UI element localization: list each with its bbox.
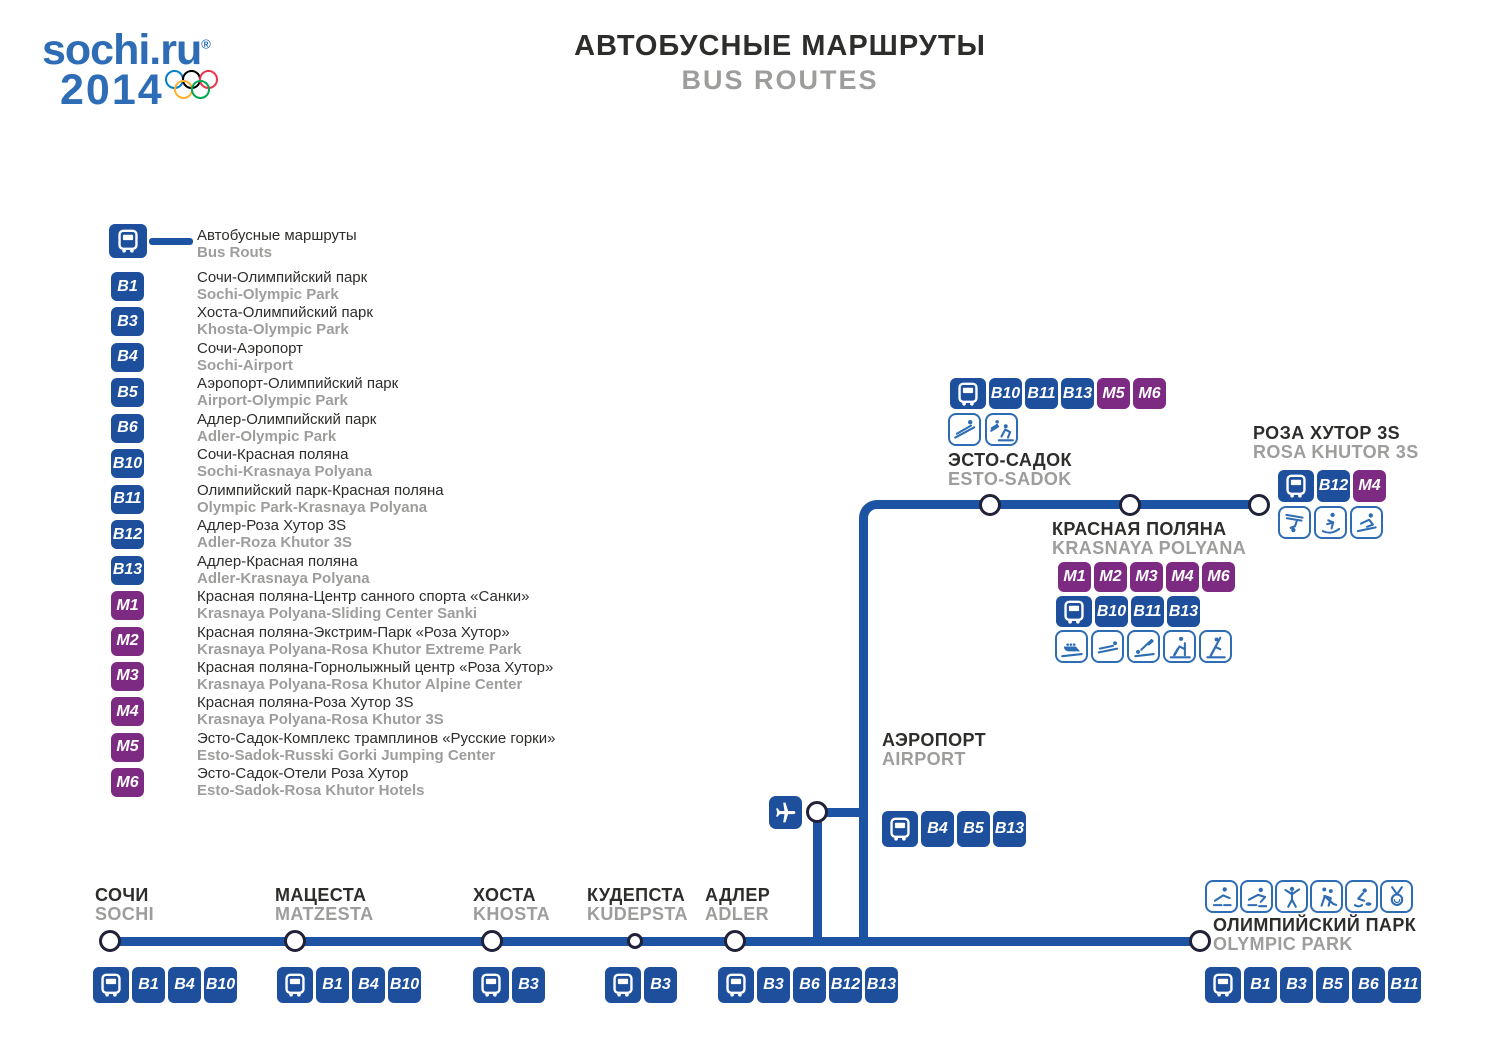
route-badge-B11: B11 <box>1025 378 1058 409</box>
route-badge-B3: B3 <box>757 967 790 1003</box>
route-badge-B10: B10 <box>111 449 144 478</box>
station-label-en: KUDEPSTA <box>587 905 688 924</box>
route-badge-B10: B10 <box>989 378 1022 409</box>
station-label-en: SOCHI <box>95 905 154 924</box>
route-badge-M4: M4 <box>1353 470 1386 502</box>
legend-text-B13: Адлер-Красная полянаAdler-Krasnaya Polya… <box>197 553 370 587</box>
legend-route-en: Adler-Roza Khutor 3S <box>197 534 352 551</box>
medals-icon <box>1380 880 1413 913</box>
route-badge-M5: M5 <box>111 733 144 762</box>
legend-route-ru: Красная поляна-Центр санного спорта «Сан… <box>197 588 529 605</box>
legend-text-B12: Адлер-Роза Хутор 3SAdler-Roza Khutor 3S <box>197 517 352 551</box>
route-line-mountain <box>859 500 1261 942</box>
legend-busline-label: Автобусные маршруты Bus Routs <box>197 227 357 261</box>
legend-route-en: Khosta-Olympic Park <box>197 321 373 338</box>
route-badge-B1: B1 <box>111 272 144 301</box>
route-badge-B6: B6 <box>111 414 144 443</box>
legend-route-en: Olympic Park-Krasnaya Polyana <box>197 499 444 516</box>
route-badge-B10: B10 <box>388 967 421 1003</box>
legend-busline-ru: Автобусные маршруты <box>197 227 357 244</box>
legend-route-en: Krasnaya Polyana-Rosa Khutor Alpine Cent… <box>197 676 553 693</box>
bobsleigh-icon <box>1055 630 1088 663</box>
station-label-en: ESTO-SADOK <box>948 470 1072 489</box>
station-label-en: ADLER <box>705 905 770 924</box>
route-badge-B6: B6 <box>793 967 826 1003</box>
route-badge-M2: M2 <box>111 627 144 656</box>
station-label-esto-sadok: ЭСТО-САДОКESTO-SADOK <box>948 451 1072 489</box>
bus-icon <box>950 378 986 409</box>
station-node-matzesta <box>284 930 306 952</box>
route-badge-B4: B4 <box>168 967 201 1003</box>
legend-text-B5: Аэропорт-Олимпийский паркAirport-Olympic… <box>197 375 398 409</box>
luge-icon <box>1091 630 1124 663</box>
route-badge-B12: B12 <box>1317 470 1350 502</box>
ski-jumping-icon <box>948 413 981 446</box>
route-badge-B1: B1 <box>1244 967 1277 1003</box>
bus-icon <box>1278 470 1314 502</box>
legend-route-en: Esto-Sadok-Russki Gorki Jumping Center <box>197 747 555 764</box>
biathlon-icon <box>1199 630 1232 663</box>
route-badge-B4: B4 <box>352 967 385 1003</box>
legend-text-B3: Хоста-Олимпийский паркKhosta-Olympic Par… <box>197 304 373 338</box>
legend-text-B1: Сочи-Олимпийский паркSochi-Olympic Park <box>197 269 367 303</box>
route-badge-M1: M1 <box>111 591 144 620</box>
station-node-krasnaya-polyana <box>1119 494 1141 516</box>
legend-text-B4: Сочи-АэропортSochi-Airport <box>197 340 303 374</box>
station-label-en: AIRPORT <box>882 750 986 769</box>
route-badge-M6: M6 <box>111 768 144 797</box>
legend-route-en: Krasnaya Polyana-Rosa Khutor Extreme Par… <box>197 641 521 658</box>
route-badge-B1: B1 <box>132 967 165 1003</box>
legend-route-ru: Красная поляна-Экстрим-Парк «Роза Хутор» <box>197 624 521 641</box>
legend-text-B11: Олимпийский парк-Красная полянаOlympic P… <box>197 482 444 516</box>
station-node-adler <box>724 930 746 952</box>
route-badge-B3: B3 <box>1280 967 1313 1003</box>
alpine-skiing-icon <box>1350 506 1383 539</box>
station-label-en: KHOSTA <box>473 905 550 924</box>
legend-route-en: Esto-Sadok-Rosa Khutor Hotels <box>197 782 425 799</box>
legend-text-M3: Красная поляна-Горнолыжный центр «Роза Х… <box>197 659 553 693</box>
route-badge-B10: B10 <box>204 967 237 1003</box>
station-label-ru: АЭРОПОРТ <box>882 731 986 750</box>
station-label-ru: ХОСТА <box>473 886 550 905</box>
ice-hockey-icon <box>1310 880 1343 913</box>
station-label-olympic-park: ОЛИМПИЙСКИЙ ПАРКOLYMPIC PARK <box>1213 916 1416 954</box>
route-badge-B12: B12 <box>111 520 144 549</box>
route-badge-B12: B12 <box>829 967 862 1003</box>
station-label-sochi: СОЧИSOCHI <box>95 886 154 924</box>
skeleton-icon <box>1127 630 1160 663</box>
legend-route-line-sample <box>149 238 193 245</box>
legend-route-en: Airport-Olympic Park <box>197 392 398 409</box>
station-label-ru: ОЛИМПИЙСКИЙ ПАРК <box>1213 916 1416 935</box>
legend-route-en: Adler-Olympic Park <box>197 428 376 445</box>
station-node-khosta <box>481 930 503 952</box>
station-label-en: KRASNAYA POLYANA <box>1052 539 1246 558</box>
route-badge-B13: B13 <box>1061 378 1094 409</box>
route-badge-B3: B3 <box>644 967 677 1003</box>
page-title-en: BUS ROUTES <box>0 65 1500 96</box>
bus-icon <box>605 967 641 1003</box>
bus-icon <box>718 967 754 1003</box>
route-badge-B11: B11 <box>1388 967 1421 1003</box>
nordic-combined-icon <box>985 413 1018 446</box>
station-label-kudepsta: КУДЕПСТАKUDEPSTA <box>587 886 688 924</box>
route-badge-M3: M3 <box>111 662 144 691</box>
bus-icon <box>277 967 313 1003</box>
legend-text-M4: Красная поляна-Роза Хутор 3SKrasnaya Pol… <box>197 694 444 728</box>
route-badge-B6: B6 <box>1352 967 1385 1003</box>
route-badge-B5: B5 <box>111 378 144 407</box>
legend-text-M1: Красная поляна-Центр санного спорта «Сан… <box>197 588 529 622</box>
route-badge-M4: M4 <box>111 697 144 726</box>
legend-route-ru: Адлер-Олимпийский парк <box>197 411 376 428</box>
route-badge-B5: B5 <box>1316 967 1349 1003</box>
legend-route-ru: Олимпийский парк-Красная поляна <box>197 482 444 499</box>
station-label-matzesta: МАЦЕСТАMATZESTA <box>275 886 374 924</box>
route-badge-B3: B3 <box>512 967 545 1003</box>
freestyle-skiing-icon <box>1278 506 1311 539</box>
bus-icon <box>93 967 129 1003</box>
station-node-rosa-khutor <box>1248 494 1270 516</box>
station-label-ru: СОЧИ <box>95 886 154 905</box>
station-label-ru: АДЛЕР <box>705 886 770 905</box>
station-label-rosa-khutor: РОЗА ХУТОР 3SROSA KHUTOR 3S <box>1253 424 1419 462</box>
legend-route-ru: Сочи-Олимпийский парк <box>197 269 367 286</box>
legend-route-en: Sochi-Olympic Park <box>197 286 367 303</box>
station-label-ru: КУДЕПСТА <box>587 886 688 905</box>
legend-route-en: Krasnaya Polyana-Sliding Center Sanki <box>197 605 529 622</box>
legend-route-en: Sochi-Krasnaya Polyana <box>197 463 372 480</box>
station-node-olympic-park <box>1189 930 1211 952</box>
legend-route-ru: Сочи-Аэропорт <box>197 340 303 357</box>
short-track-icon <box>1205 880 1238 913</box>
station-label-krasnaya-polyana: КРАСНАЯ ПОЛЯНАKRASNAYA POLYANA <box>1052 520 1246 558</box>
route-badge-B1: B1 <box>316 967 349 1003</box>
station-label-ru: КРАСНАЯ ПОЛЯНА <box>1052 520 1246 539</box>
route-badge-B13: B13 <box>865 967 898 1003</box>
bus-routes-map-page: sochi.ru® 2014 АВТОБУСНЫЕ МАРШРУТЫ BUS R… <box>0 0 1500 1060</box>
legend-route-ru: Красная поляна-Роза Хутор 3S <box>197 694 444 711</box>
bus-icon <box>109 224 147 258</box>
page-title-ru: АВТОБУСНЫЕ МАРШРУТЫ <box>0 30 1500 63</box>
legend-route-ru: Адлер-Красная поляна <box>197 553 370 570</box>
airplane-icon <box>769 796 802 829</box>
route-badge-M6: M6 <box>1133 378 1166 409</box>
legend-text-M2: Красная поляна-Экстрим-Парк «Роза Хутор»… <box>197 624 521 658</box>
legend-route-ru: Красная поляна-Горнолыжный центр «Роза Х… <box>197 659 553 676</box>
legend-route-en: Krasnaya Polyana-Rosa Khutor 3S <box>197 711 444 728</box>
legend-route-ru: Сочи-Красная поляна <box>197 446 372 463</box>
snowboard-icon <box>1314 506 1347 539</box>
station-node-esto-sadok <box>979 494 1001 516</box>
station-label-en: OLYMPIC PARK <box>1213 935 1416 954</box>
route-badge-B4: B4 <box>111 343 144 372</box>
legend-busline-en: Bus Routs <box>197 244 357 261</box>
station-node-airport <box>806 801 828 823</box>
legend-route-ru: Эсто-Садок-Комплекс трамплинов «Русские … <box>197 730 555 747</box>
legend-route-ru: Эсто-Садок-Отели Роза Хутор <box>197 765 425 782</box>
station-node-kudepsta <box>627 933 643 949</box>
station-label-airport: АЭРОПОРТAIRPORT <box>882 731 986 769</box>
route-badge-M5: M5 <box>1097 378 1130 409</box>
speed-skating-icon <box>1240 880 1273 913</box>
station-label-ru: ЭСТО-САДОК <box>948 451 1072 470</box>
route-badge-B3: B3 <box>111 307 144 336</box>
station-label-en: ROSA KHUTOR 3S <box>1253 443 1419 462</box>
bus-icon <box>473 967 509 1003</box>
route-line-airport-branch <box>813 812 822 942</box>
station-node-sochi <box>99 930 121 952</box>
legend-route-ru: Аэропорт-Олимпийский парк <box>197 375 398 392</box>
station-label-khosta: ХОСТАKHOSTA <box>473 886 550 924</box>
legend-text-B10: Сочи-Красная полянаSochi-Krasnaya Polyan… <box>197 446 372 480</box>
legend-text-B6: Адлер-Олимпийский паркAdler-Olympic Park <box>197 411 376 445</box>
legend-route-ru: Хоста-Олимпийский парк <box>197 304 373 321</box>
figure-skating-icon <box>1275 880 1308 913</box>
station-label-ru: МАЦЕСТА <box>275 886 374 905</box>
route-badge-B13: B13 <box>111 556 144 585</box>
legend-route-ru: Адлер-Роза Хутор 3S <box>197 517 352 534</box>
bus-icon <box>1205 967 1241 1003</box>
legend-text-M5: Эсто-Садок-Комплекс трамплинов «Русские … <box>197 730 555 764</box>
route-badge-B11: B11 <box>111 485 144 514</box>
curling-icon <box>1345 880 1378 913</box>
legend-text-M6: Эсто-Садок-Отели Роза ХуторEsto-Sadok-Ro… <box>197 765 425 799</box>
station-label-en: MATZESTA <box>275 905 374 924</box>
station-label-adler: АДЛЕРADLER <box>705 886 770 924</box>
cross-country-skiing-icon <box>1163 630 1196 663</box>
legend-route-en: Adler-Krasnaya Polyana <box>197 570 370 587</box>
legend-route-en: Sochi-Airport <box>197 357 303 374</box>
station-label-ru: РОЗА ХУТОР 3S <box>1253 424 1419 443</box>
page-title: АВТОБУСНЫЕ МАРШРУТЫ BUS ROUTES <box>0 30 1500 96</box>
